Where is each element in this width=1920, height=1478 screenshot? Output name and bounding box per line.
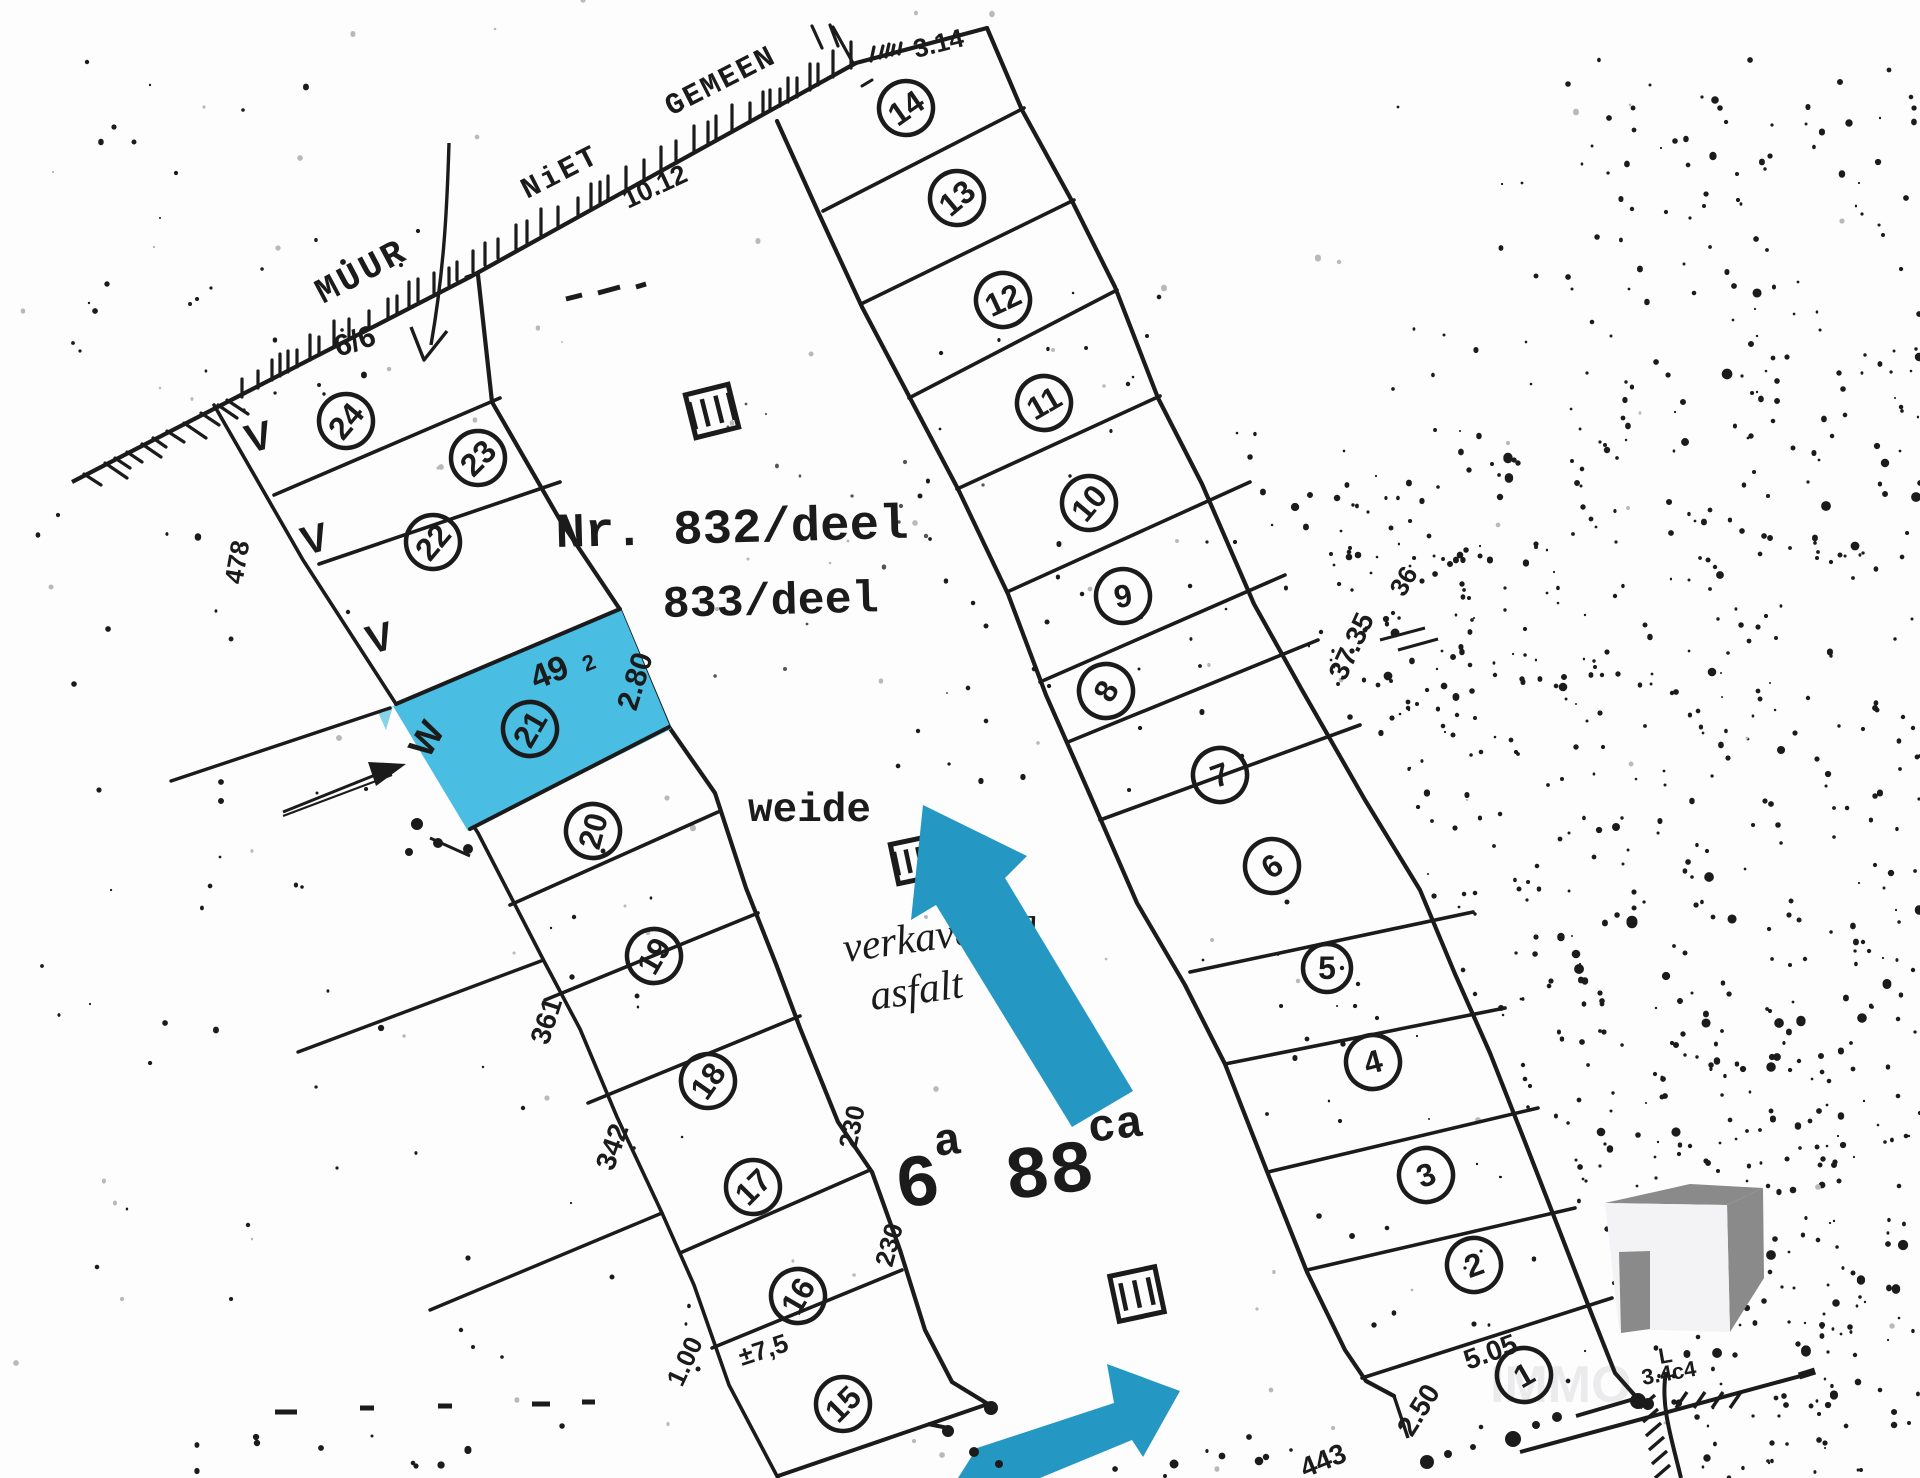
svg-text:weide: weide: [748, 788, 871, 834]
svg-text:833/deel: 833/deel: [662, 574, 879, 631]
svg-text:5: 5: [1318, 950, 1336, 986]
svg-text:Nr. 832/deel: Nr. 832/deel: [555, 497, 909, 562]
svg-text:88: 88: [1001, 1128, 1099, 1222]
